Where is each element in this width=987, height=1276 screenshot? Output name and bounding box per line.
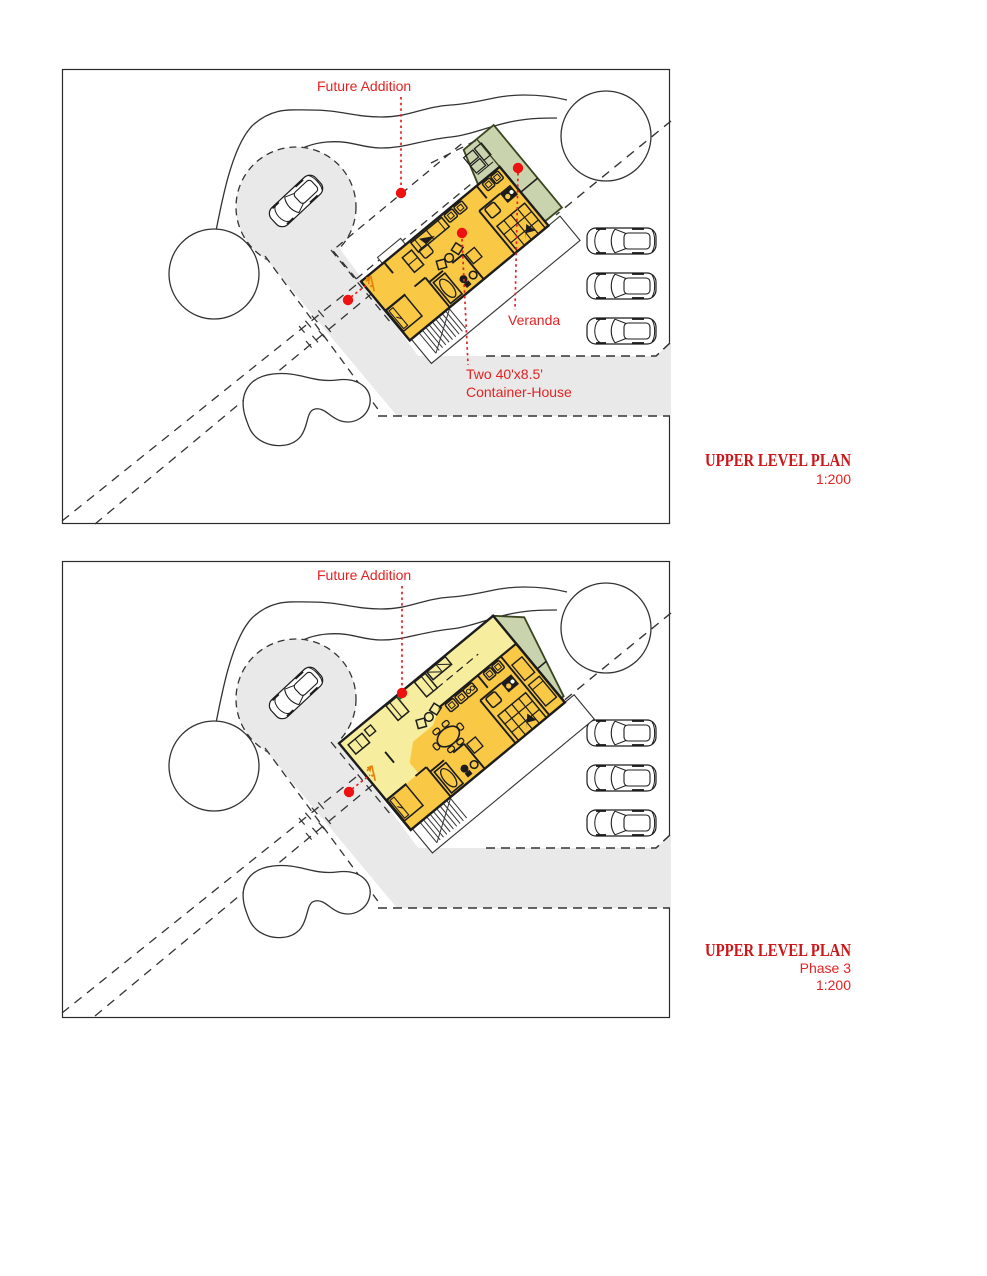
svg-text:UPPER LEVEL PLAN: UPPER LEVEL PLAN: [705, 450, 851, 470]
svg-text:Phase 3: Phase 3: [800, 960, 852, 976]
svg-text:Future Addition: Future Addition: [317, 78, 411, 94]
svg-text:1:200: 1:200: [816, 471, 851, 487]
svg-text:UPPER LEVEL PLAN: UPPER LEVEL PLAN: [705, 940, 851, 960]
svg-text:Two 40'x8.5': Two 40'x8.5': [466, 366, 543, 382]
svg-text:Future Addition: Future Addition: [317, 567, 411, 583]
svg-text:Veranda: Veranda: [508, 312, 560, 328]
svg-text:Container-House: Container-House: [466, 384, 572, 400]
svg-text:1:200: 1:200: [816, 977, 851, 993]
